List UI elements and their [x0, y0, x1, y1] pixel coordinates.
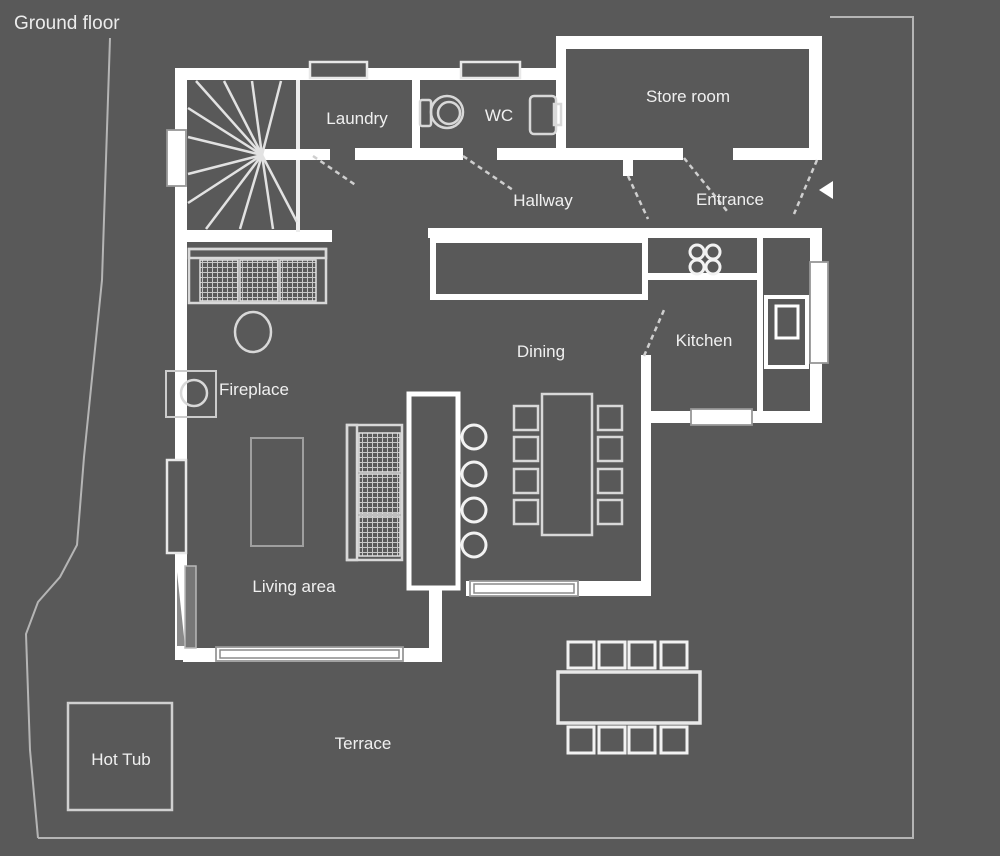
sofa-cushion — [240, 260, 278, 301]
bar-stool — [462, 533, 486, 557]
label-dining: Dining — [517, 342, 565, 361]
sofa-cushion — [280, 260, 316, 301]
hob-burner — [706, 245, 720, 259]
terrace-furniture — [68, 642, 700, 810]
label-hot-tub: Hot Tub — [91, 750, 151, 769]
sofa-cushion — [359, 433, 400, 472]
hob-counter-edge — [645, 273, 763, 280]
label-store-room: Store room — [646, 87, 730, 106]
hallway-door-swing — [628, 176, 648, 219]
dining-chair — [598, 406, 622, 430]
wall-dining-top — [428, 228, 822, 238]
toilet-tank — [420, 100, 431, 126]
bar-counter — [409, 394, 458, 588]
label-fireplace: Fireplace — [219, 380, 289, 399]
toilet-bowl-inner — [438, 102, 460, 124]
window-kitchen-bottom — [691, 409, 752, 425]
wc-door-swing — [463, 156, 513, 190]
sofa-horizontal-back — [189, 249, 326, 258]
wall-laundry-bottom — [355, 148, 420, 160]
terrace-chair — [629, 642, 655, 668]
terrace-table — [558, 672, 700, 723]
bar-stool — [462, 498, 486, 522]
page-title: Ground floor — [14, 13, 120, 34]
fireplace-box — [166, 371, 216, 417]
sofa-cushion — [200, 260, 238, 301]
dining-chair — [598, 500, 622, 524]
terrace-chair — [661, 727, 687, 753]
dining-chair — [514, 469, 538, 493]
kitchen-fixtures — [433, 238, 807, 415]
floor-plan-drawing: Ground floor Laundry WC Store room Hallw… — [0, 0, 1000, 856]
wall-store-bottom-left — [556, 148, 683, 160]
stair-door-swing — [313, 156, 357, 186]
hob-burner — [690, 245, 704, 259]
sideboard-counter — [433, 240, 645, 297]
terrace-chair — [568, 727, 594, 753]
dining-chair — [514, 437, 538, 461]
label-kitchen: Kitchen — [676, 331, 733, 350]
dining-furniture — [409, 394, 622, 588]
dining-chair — [598, 469, 622, 493]
window-left-lower — [167, 460, 186, 553]
door-swings — [313, 156, 833, 356]
wall-kitchen-dining-divider — [641, 355, 651, 596]
wall-hall-top — [497, 148, 563, 160]
window-kitchen-right — [810, 262, 828, 363]
bar-stool — [462, 425, 486, 449]
label-wc: WC — [485, 106, 513, 125]
dining-chair — [598, 437, 622, 461]
dining-table — [542, 394, 592, 535]
label-terrace: Terrace — [335, 734, 392, 753]
entrance-arrow-icon — [819, 181, 833, 199]
hob-burner — [690, 260, 704, 274]
entrance-door-swing-right — [794, 160, 817, 214]
oven-appliance-door — [776, 306, 798, 338]
wall-hall-stub — [623, 160, 633, 176]
terrace-door-leaf — [185, 566, 196, 648]
terrace-chair — [568, 642, 594, 668]
terrace-chair — [629, 727, 655, 753]
bar-stool — [462, 462, 486, 486]
stair-tread — [262, 81, 281, 155]
wc-sink — [530, 96, 556, 134]
floor-plan: Ground floor Laundry WC Store room Hallw… — [0, 0, 1000, 856]
wall-store-bottom-right — [733, 148, 822, 160]
living-furniture — [166, 249, 402, 560]
stair-landing — [258, 149, 330, 160]
label-entrance: Entrance — [696, 190, 764, 209]
label-living-area: Living area — [252, 577, 336, 596]
sofa-cushion — [359, 516, 400, 556]
wall-store-top — [556, 36, 822, 49]
rug — [251, 438, 303, 546]
window-top-1 — [310, 62, 367, 78]
terrace-chair — [661, 642, 687, 668]
wall-wc-bottom — [420, 148, 463, 160]
terrace-chair — [599, 642, 625, 668]
wall-stair-bottom — [175, 230, 332, 242]
window-left-upper — [167, 130, 186, 186]
dining-chair — [514, 500, 538, 524]
dining-chair — [514, 406, 538, 430]
window-top-2 — [461, 62, 520, 78]
kitchen-counter-right-edge — [757, 238, 763, 415]
stair-tread — [188, 137, 262, 155]
label-hallway: Hallway — [513, 191, 573, 210]
label-laundry: Laundry — [326, 109, 388, 128]
window-living-bottom — [216, 647, 403, 661]
terrace-chair — [599, 727, 625, 753]
side-table-round — [235, 312, 271, 352]
kitchen-door-leaf — [644, 310, 664, 356]
sofa-vertical-back — [347, 425, 357, 560]
wall-store-left — [556, 36, 566, 160]
hob-burner — [706, 260, 720, 274]
wall-store-right — [809, 36, 822, 160]
sofa-cushion — [359, 474, 400, 514]
